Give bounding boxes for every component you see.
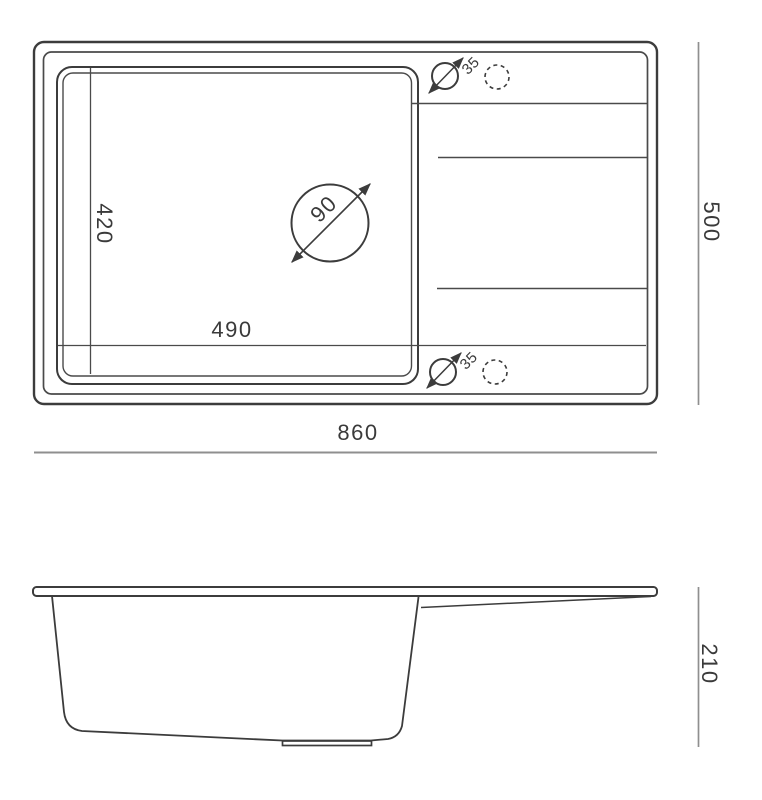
overall-width-label: 860 [337,420,378,446]
side-bowl-profile [52,596,419,741]
overall-height-label: 210 [696,643,722,684]
tap-hole-top-alt-dashed-circle [485,65,509,89]
bowl-width-label: 490 [211,317,252,343]
outer-rim-outline [34,42,657,404]
side-drainboard-line [421,597,651,608]
side-view [33,587,657,746]
bowl-depth-label: 420 [91,203,117,244]
top-view [34,42,657,404]
side-rim-profile [33,587,657,596]
sink-technical-drawing: 420 490 90 35 35 860 500 210 [0,0,762,800]
overall-depth-label: 500 [698,201,724,242]
drawing-geometry [0,0,762,800]
side-drain-outlet [283,741,372,746]
tap-hole-bottom-alt-dashed-circle [483,360,507,384]
